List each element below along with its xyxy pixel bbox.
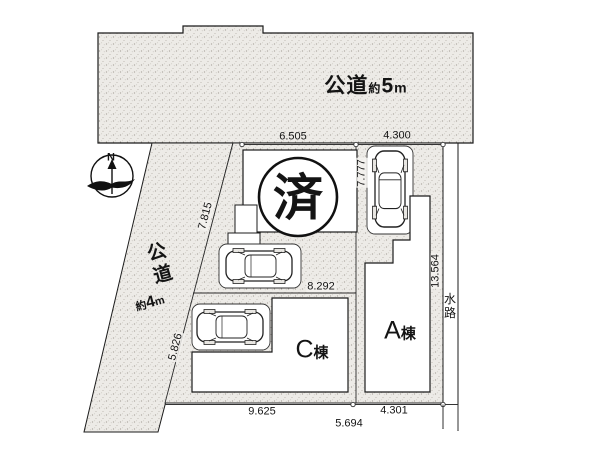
car-middle xyxy=(226,249,292,284)
dim-north-west: 6.505 xyxy=(279,132,307,143)
site-plan: 公道約5m 公 道 約4m 水 路 済 A棟 C棟 N 6.505 4.300 … xyxy=(0,0,600,450)
building-a-suffix: 棟 xyxy=(401,326,416,343)
dim-center: 8.292 xyxy=(306,282,336,293)
waterway-label: 水 路 xyxy=(444,293,456,319)
dimension-line-south xyxy=(165,402,458,430)
building-c-suffix: 棟 xyxy=(314,345,329,362)
waterway-char-2: 路 xyxy=(444,307,456,319)
compass-north-label: N xyxy=(107,153,115,164)
road-top-label: 公道約5m xyxy=(324,76,407,97)
building-a-letter: A xyxy=(384,317,401,345)
building-sold-step-1 xyxy=(235,205,257,233)
building-c-label: C棟 xyxy=(295,338,328,363)
car-c xyxy=(197,310,263,345)
road-top-unit: m xyxy=(394,80,407,96)
road-top-name: 公道 xyxy=(324,75,368,98)
dim-east-side: 13.564 xyxy=(431,253,442,289)
road-top-approx: 約 xyxy=(368,82,381,96)
road-top-area xyxy=(98,26,473,143)
building-c-letter: C xyxy=(295,336,313,364)
dim-south-east: 4.301 xyxy=(380,406,408,417)
road-top-width: 5 xyxy=(381,75,394,98)
dim-east-parking: 7.777 xyxy=(357,158,368,188)
sold-mark-text: 済 xyxy=(273,173,323,223)
building-a-label: A棟 xyxy=(384,319,416,344)
waterway-char-1: 水 xyxy=(444,293,456,305)
dim-south-center: 5.694 xyxy=(335,419,363,430)
dim-south-west: 9.625 xyxy=(248,407,276,418)
car-a xyxy=(373,151,408,227)
dim-north-east: 4.300 xyxy=(383,131,411,142)
